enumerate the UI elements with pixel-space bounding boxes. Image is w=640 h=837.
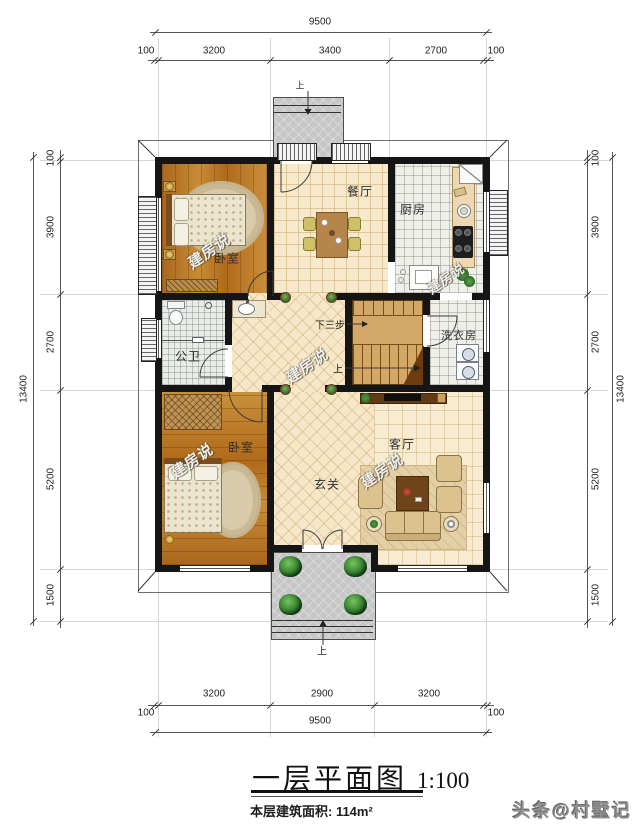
wardrobe [164,394,222,430]
pillow [174,198,189,221]
porch-step [272,620,373,621]
room-label-dining: 餐厅 [347,183,373,200]
wall [483,533,490,572]
flower-pot [326,384,337,395]
dim-label: 3900 [591,216,602,238]
floor-plan-canvas: 上 上 [0,0,640,837]
dim-label: 3900 [46,216,57,238]
dim-label: 2700 [46,331,57,353]
bowl [398,277,404,283]
dresser [166,279,218,292]
bay-window [141,318,157,362]
wall [368,157,490,164]
wall [155,157,162,198]
plate [335,237,342,244]
armchair [436,486,462,513]
room-label-kitchen: 厨房 [400,201,426,218]
dim-label: 100 [138,708,155,719]
washer-drum [462,348,475,361]
porch-step [274,105,341,106]
bowl [400,269,406,275]
window [180,565,250,572]
dim-label: 100 [138,46,155,57]
shrub [344,556,367,577]
shower-head-icon [205,302,212,309]
wall [483,157,490,192]
fan [447,520,455,528]
dining-chair [348,237,361,251]
sofa-back [385,533,441,541]
coffee-table [396,476,429,511]
dim-label: 100 [591,150,602,167]
corner-cabinet [459,164,483,184]
wall [423,347,430,392]
wall-stub [371,545,378,572]
window [483,300,490,352]
dim-label: 3200 [203,689,225,700]
magazine [415,497,422,502]
title-underline-thin [251,796,423,797]
stair-upper-treads [353,301,422,316]
guide-line [40,621,271,622]
wall [155,157,280,164]
shrub [279,594,302,615]
room-label-laundry: 洗衣房 [441,327,477,343]
washing-machine [456,344,479,362]
dimension-line [612,152,613,626]
washing-machine [456,362,479,380]
wall [225,293,232,345]
wash-basin [238,303,255,315]
tv [384,394,421,401]
porch-step [272,632,373,633]
guide-line [375,621,608,622]
burner [455,245,462,252]
room-label-bedroom-bottom: 卧室 [228,439,254,456]
shrub [344,594,367,615]
window [398,565,467,572]
porch-railing [331,143,371,161]
dim-label: 3400 [319,46,341,57]
teapot [329,230,335,236]
footer-brand-watermark: 头条@村墅记 [512,797,632,823]
wall [345,293,352,392]
dim-label: 2700 [591,331,602,353]
wall [388,157,395,262]
dim-label: 5200 [46,468,57,490]
dining-chair [303,217,316,231]
toilet-bowl [169,310,183,325]
armchair [436,455,462,482]
dimension-line [148,60,494,61]
dim-label: 3200 [418,689,440,700]
burner [455,229,462,236]
table-lamp [165,182,174,191]
dim-label: 1500 [46,584,57,606]
dimension-line [150,32,492,33]
area-note: 本层建筑面积: 114m² [250,801,373,820]
burner [464,245,471,252]
bay-window [138,196,157,295]
dim-label: 9500 [309,17,331,28]
dimension-line [33,152,34,626]
dim-label: 1500 [591,584,602,606]
top-porch-up-label: 上 [295,79,304,92]
dim-label: 100 [46,150,57,167]
title-underline-thick [251,790,423,793]
wall [267,385,274,572]
table-lamp [165,250,174,259]
room-label-foyer: 玄关 [314,476,340,493]
wall [225,377,232,392]
flower-pot [280,292,291,303]
speaker [437,393,446,403]
title-scale: 1:100 [417,768,469,793]
wall [155,385,228,392]
wall [267,157,274,300]
plate [321,219,328,226]
bottom-porch-up-label: 上 [317,643,327,658]
dining-chair [348,217,361,231]
foyer-floor [274,392,374,545]
dim-label: 13400 [19,375,30,403]
wall [472,293,490,300]
dimension-line [150,732,492,733]
dim-label: 100 [488,46,505,57]
partition-handle [192,337,204,343]
dim-label: 2700 [425,46,447,57]
burner [464,229,471,236]
porch-railing [277,143,317,161]
staircase [352,300,423,385]
shrub [279,556,302,577]
room-label-bathroom: 公卫 [175,348,201,365]
bay-window [489,190,508,256]
guide-line [158,572,159,737]
bed-headboard [166,194,172,246]
dim-label: 9500 [309,716,331,727]
washer-drum [462,366,475,379]
porch-step [272,626,373,627]
flower-pot [326,292,337,303]
stairs-down-label: 下三步 [315,317,345,332]
stairs-up-label: 上 [333,361,343,376]
porch-step [274,112,341,113]
table-lamp [165,535,174,544]
flower-pot [280,384,291,395]
dining-chair [303,237,316,251]
plant [370,520,378,528]
wall [155,293,248,300]
window [483,483,490,533]
dimension-line [148,705,494,706]
dim-label: 3200 [203,46,225,57]
plant [361,393,370,403]
wall [483,352,490,483]
dim-label: 5200 [591,468,602,490]
plant [464,276,475,287]
dim-label: 2900 [311,689,333,700]
kitchen-sink-basin [460,207,468,215]
dim-label: 13400 [616,375,627,403]
flowers [403,488,411,496]
pillow [174,223,189,246]
wall [423,293,430,315]
dim-label: 100 [488,708,505,719]
toilet-tank [167,301,185,309]
